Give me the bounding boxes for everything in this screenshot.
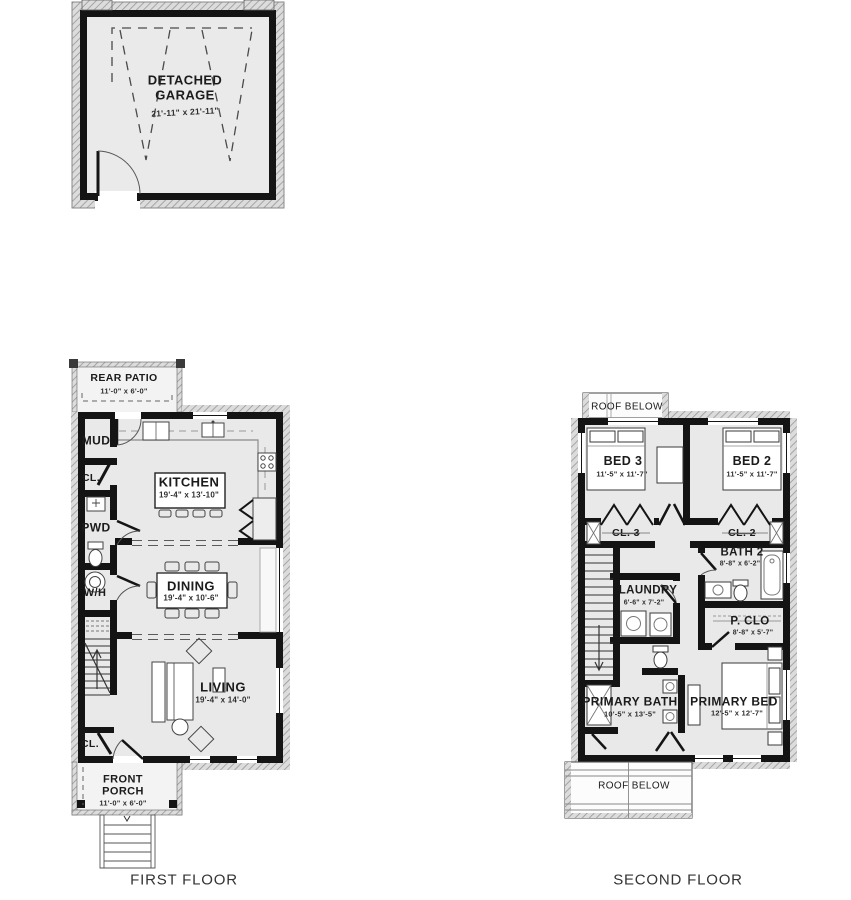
mud-label: MUD xyxy=(82,434,111,447)
dining-label: DINING xyxy=(167,580,215,595)
porch-steps xyxy=(100,815,155,868)
primary-toilet xyxy=(654,652,667,668)
water-heater-label: W/H xyxy=(84,587,107,599)
laundry-fixtures xyxy=(621,611,671,636)
laundry-label: LAUNDRY xyxy=(619,585,678,598)
bath2-vanity xyxy=(705,582,731,598)
rear-patio-dims: 11'-0" x 6'-0" xyxy=(100,387,147,396)
garage-floor xyxy=(87,17,269,193)
garage-plan-drawing xyxy=(68,0,288,212)
bed2-label: BED 2 xyxy=(733,454,772,468)
floor-plan-sheet: DETACHED GARAGE 21'-11" x 21'-11" REAR P… xyxy=(0,0,851,900)
closet-lower-label: CL. xyxy=(81,739,99,751)
bed3-dims: 11'-5" x 11'-7" xyxy=(596,470,647,479)
kitchen-label: KITCHEN xyxy=(159,476,220,491)
kitchen-dims: 19'-4" x 13'-10" xyxy=(159,491,219,500)
powder-label: PWD xyxy=(81,521,110,534)
closet-upper-label: CL. xyxy=(82,473,100,485)
front-porch-dims: 11'-0" x 6'-0" xyxy=(99,799,146,808)
bed3-dresser xyxy=(657,447,683,483)
bed3-label: BED 3 xyxy=(604,454,643,468)
living-dims: 19'-4" x 14'-0" xyxy=(195,696,250,705)
primary-bath-dims: 10'-5" x 13'-5" xyxy=(604,710,656,719)
primary-closet-dims: 8'-8" x 5'-7" xyxy=(733,630,774,637)
powder-fixtures xyxy=(85,497,105,592)
range xyxy=(258,453,276,471)
second-floor-drawing xyxy=(555,385,805,830)
laundry-dims: 6'-6" x 7'-2" xyxy=(624,600,665,607)
sofa xyxy=(167,663,193,720)
primary-closet-label: P. CLO xyxy=(730,616,769,629)
front-porch-label: FRONT PORCH xyxy=(91,774,155,799)
powder-toilet xyxy=(89,550,102,567)
roof-below-top-label: ROOF BELOW xyxy=(591,401,663,412)
bath2-dims: 8'-8" x 6'-2" xyxy=(720,561,761,568)
living-label: LIVING xyxy=(200,681,246,696)
rear-patio xyxy=(69,359,185,412)
bath2-toilet xyxy=(734,585,747,601)
primary-bed-label: PRIMARY BED xyxy=(690,695,778,708)
second-floor-caption: SECOND FLOOR xyxy=(613,872,743,889)
pantry xyxy=(253,498,276,540)
rear-patio-label: REAR PATIO xyxy=(90,373,157,385)
roof-below-bottom-label: ROOF BELOW xyxy=(598,780,670,791)
primary-bed-dims: 12'-5" x 12'-7" xyxy=(711,709,763,718)
primary-bath-label: PRIMARY BATH xyxy=(582,695,677,708)
bath2-label: BATH 2 xyxy=(720,547,763,560)
chaise xyxy=(152,662,165,722)
closet3-label: CL. 3 xyxy=(612,528,640,540)
closet2-label: CL. 2 xyxy=(728,528,756,540)
first-floor-caption: FIRST FLOOR xyxy=(130,872,238,889)
dining-dims: 19'-4" x 10'-6" xyxy=(163,594,218,603)
window-seat xyxy=(260,548,276,632)
bed2-dims: 11'-5" x 11'-7" xyxy=(726,470,777,479)
side-table xyxy=(172,719,188,735)
garage-label: DETACHED GARAGE xyxy=(137,73,233,102)
